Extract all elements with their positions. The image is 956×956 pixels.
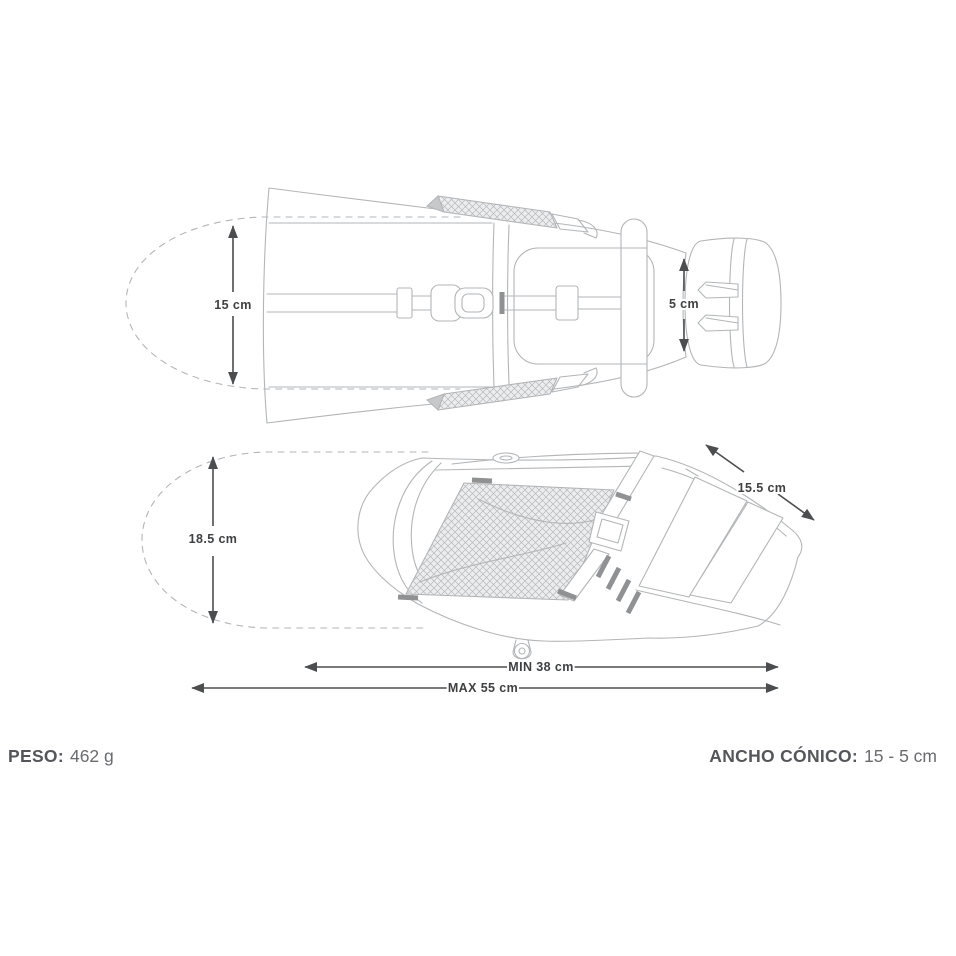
top-view-center-strap — [267, 285, 620, 321]
top-view-vertical-strap — [621, 219, 647, 397]
weight-label: PESO: — [8, 746, 64, 766]
buckle-male — [455, 288, 493, 318]
dimension-rear-width-label: 5 cm — [669, 297, 699, 311]
cord-clasp — [493, 453, 519, 463]
spec-row: PESO:462 g ANCHO CÓNICO:15 - 5 cm — [0, 747, 956, 766]
dimension-side-height-label: 18.5 cm — [189, 532, 238, 546]
side-view: 18.5 cm 15.5 cm MIN 38 cm MAX 55 cm — [142, 445, 814, 695]
bottom-eyelet — [513, 640, 531, 659]
taper-width-label: ANCHO CÓNICO: — [709, 746, 858, 766]
strap-slider — [397, 288, 412, 318]
dimension-top-width-label: 15 cm — [214, 298, 251, 312]
top-hatched-strap — [427, 196, 597, 238]
taper-width-value: 15 - 5 cm — [864, 746, 937, 766]
dimension-min-length-label: MIN 38 cm — [508, 660, 573, 674]
strap-slider — [556, 286, 578, 320]
dimension-top-width: 15 cm — [214, 226, 251, 384]
weight-spec: PESO:462 g — [8, 747, 114, 766]
top-view: 15 cm 5 cm — [126, 188, 781, 423]
bottom-hatched-strap — [427, 368, 597, 410]
side-view-dashed-extension — [142, 452, 428, 628]
panel-mark — [398, 597, 418, 598]
ladder-buckle — [589, 512, 629, 551]
dimension-rear-width: 5 cm — [669, 259, 699, 351]
dimension-tail-length-label: 15.5 cm — [738, 481, 787, 495]
dimension-min-length: MIN 38 cm — [305, 660, 778, 674]
taper-width-spec: ANCHO CÓNICO:15 - 5 cm — [709, 747, 937, 766]
panel-mark — [472, 480, 492, 481]
vent-slats — [598, 556, 639, 613]
saddle-bag-diagram: 15 cm 5 cm — [0, 0, 956, 956]
dimension-max-length-label: MAX 55 cm — [448, 681, 518, 695]
saddle-rail-prongs — [698, 282, 738, 331]
weight-value: 462 g — [70, 746, 114, 766]
product-spec-sheet: 15 cm 5 cm — [0, 0, 956, 956]
dimension-max-length: MAX 55 cm — [192, 681, 778, 695]
dimension-side-height: 18.5 cm — [189, 457, 238, 623]
